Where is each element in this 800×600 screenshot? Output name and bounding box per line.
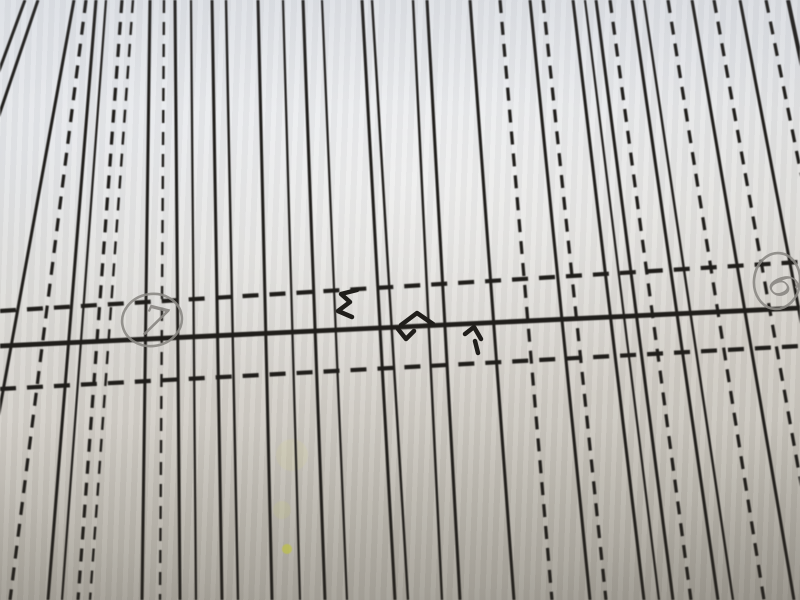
- notch-mark-1: [401, 313, 433, 325]
- pencil-annotation-7: 7: [118, 289, 186, 351]
- pencil-annotation-6: 6: [751, 251, 800, 312]
- photo-sewing-pattern-paper: 76: [0, 0, 800, 600]
- notch-mark-2: [398, 329, 414, 339]
- notch-mark-3: [465, 327, 481, 339]
- pencil-circled-numbers: 76: [118, 251, 800, 351]
- hand-marks-layer: 76: [0, 0, 800, 600]
- notch-mark-4: [475, 341, 478, 353]
- notch-mark-0: [338, 290, 357, 317]
- zigzag-notch-marks: [338, 290, 481, 353]
